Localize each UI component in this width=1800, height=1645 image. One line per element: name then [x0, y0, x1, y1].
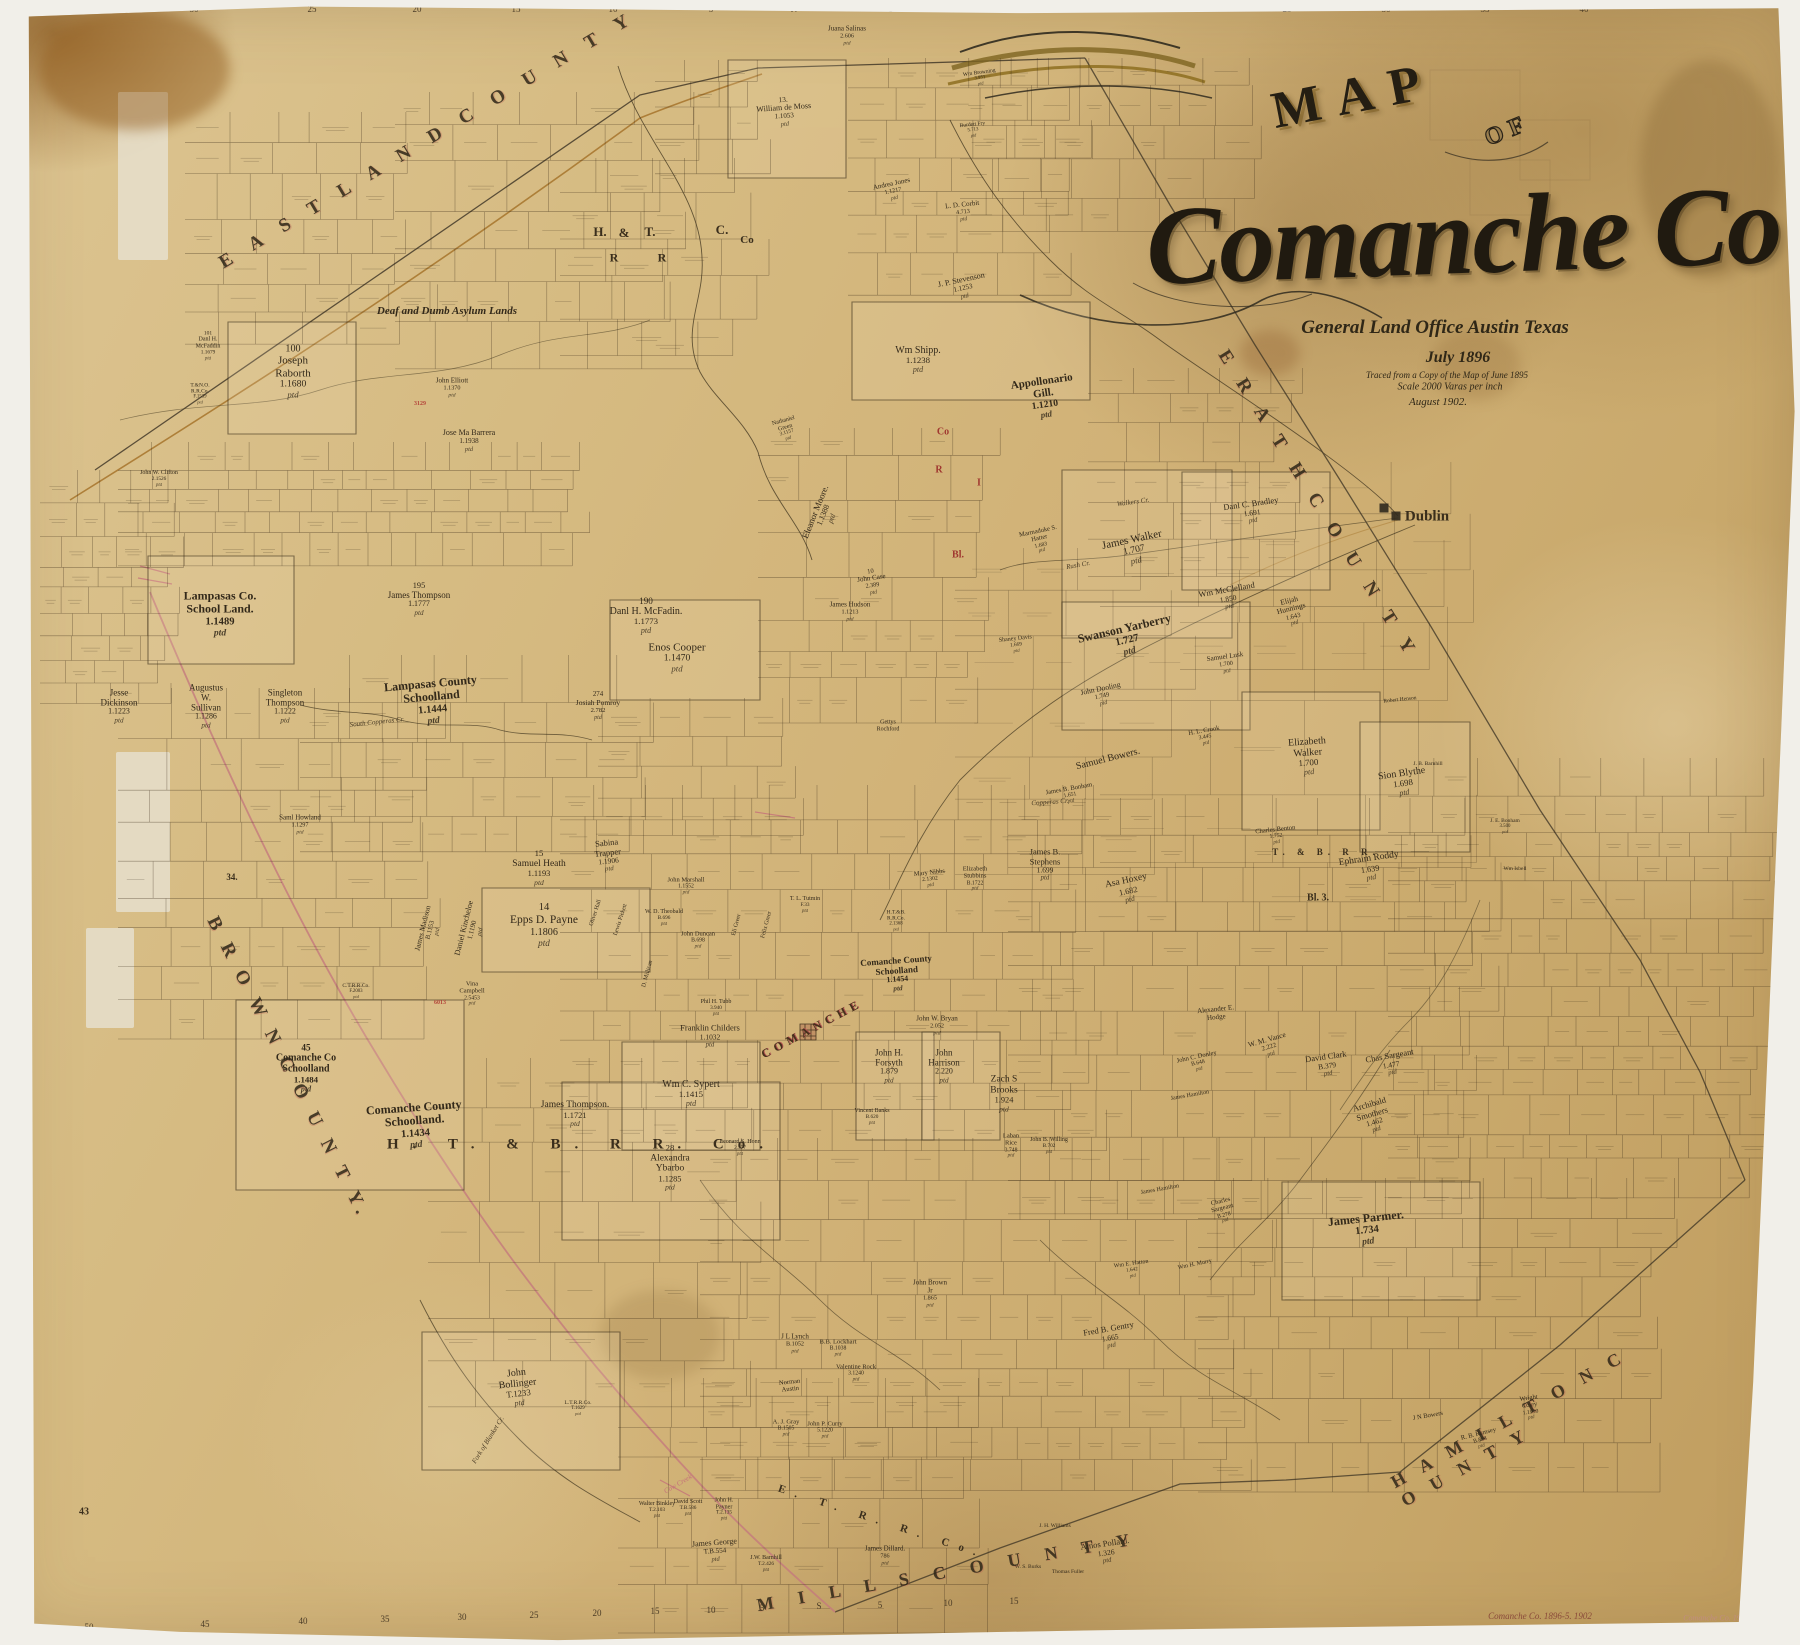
block-letter: R	[610, 251, 619, 266]
survey-label: Enos Cooper1.1470ptd	[648, 642, 705, 675]
survey-label: Lampasas Co.School Land.1.1489ptd	[184, 589, 257, 638]
ruler-mark-left: 10	[10, 695, 19, 705]
survey-label: James B.Stephens1.699ptd	[1030, 847, 1061, 882]
survey-label: JohnBollingerT.1233ptd	[497, 1366, 539, 1411]
archive-note: Comanche Co. 1902	[1683, 1614, 1749, 1623]
survey-label: T.&N.O.R.R.Co.F.1539ptd	[190, 383, 209, 406]
ruler-mark-bottom: 15	[1010, 1596, 1019, 1606]
survey-label: J L LynchB.1052ptd	[781, 1334, 809, 1355]
survey-label: David ScottT.B.586ptd	[674, 1499, 703, 1517]
subtitle-traced: Traced from a Copy of the Map of June 18…	[1366, 370, 1528, 380]
survey-label: 274Josiah Pomroy2.782ptd	[576, 691, 620, 721]
map-ink	[848, 58, 1091, 295]
ruler-mark-top: N	[791, 4, 798, 14]
block-letter: H.	[593, 224, 606, 240]
survey-label: John Marshall1.1552ptd	[667, 876, 704, 895]
survey-label: H.T.&B.R.R.Co.2.1368ptd	[887, 910, 906, 933]
ruler-mark-left: 35	[10, 195, 19, 205]
survey-label: Juana Salinas2.606ptd	[828, 26, 866, 47]
survey-label: 15Samuel Heath1.1193ptd	[512, 849, 566, 887]
block-letter: I	[977, 478, 981, 489]
survey-label: Wm Shipp.1.1238ptd	[895, 345, 941, 375]
survey-label: ElizabethWalker1.700ptd	[1288, 735, 1329, 779]
survey-label: Charles Benton1.752ptd	[1255, 824, 1297, 848]
survey-label: Phil H. Tubb3.940ptd	[701, 999, 732, 1017]
map-ink	[40, 470, 184, 704]
ruler-mark-top: 35	[1481, 4, 1490, 14]
survey-label: John H.PaynerT.2.135ptd	[715, 1498, 734, 1523]
survey-label: Deaf and Dumb Asylum Lands	[377, 305, 517, 317]
survey-label: ElizabethStubbinsB.1722ptd	[963, 866, 988, 893]
ruler-mark-left: 35	[10, 1595, 19, 1605]
survey-label: L.T.R.R.Co.T.1629ptd	[565, 1400, 592, 1417]
block-letter: Bl. 3.	[1307, 893, 1329, 904]
survey-label: 14Epps D. Payne1.1806ptd	[510, 902, 578, 948]
survey-label: NormanAustin	[779, 1378, 802, 1395]
ruler-mark-top: 30	[190, 4, 199, 14]
survey-label: JesseDickinson1.1223ptd	[101, 687, 138, 724]
ruler-mark-left: 20	[10, 495, 19, 505]
survey-label: John W. Bryan2.052ptd	[916, 1016, 957, 1037]
block-letter: R	[658, 251, 667, 266]
block-letter: &	[619, 225, 630, 241]
ruler-mark-top: 10	[986, 4, 995, 14]
ruler-mark-bottom: S	[816, 1601, 821, 1611]
survey-label: Comanche CountySchoolland1.1454ptd	[860, 953, 934, 995]
ruler-mark-bottom: 50	[85, 1622, 94, 1632]
ruler-mark-bottom: 30	[458, 1612, 467, 1622]
ruler-mark-left: 30	[10, 1495, 19, 1505]
ruler-mark-top: 15	[512, 4, 521, 14]
ruler-mark-top: 40	[1580, 4, 1589, 14]
ruler-mark-bottom: 20	[593, 1608, 602, 1618]
survey-label: John W. Clifton2.1526ptd	[140, 470, 178, 488]
map-ink	[118, 442, 590, 566]
survey-label: James Dillard.786ptd	[865, 1546, 905, 1567]
survey-label: John B. WillingB.702ptd	[1030, 1137, 1068, 1155]
title-county: Comanche Co	[1144, 161, 1783, 312]
survey-label: James GeorgeT.B.554ptd	[692, 1537, 739, 1564]
survey-label: John H.Forsyth1.879ptd	[875, 1047, 903, 1084]
survey-label: AppollonarioGill.1.1210ptd	[1010, 371, 1078, 425]
survey-label: VinaCampbell2.5453ptd	[459, 981, 484, 1008]
ruler-mark-left: 25	[10, 1395, 19, 1405]
ruler-mark-top: 20	[413, 4, 422, 14]
survey-label: J. E. Bonham3.500ptd	[1490, 818, 1520, 835]
survey-label: GettysRochford	[877, 719, 900, 732]
subtitle-scale: Scale 2000 Varas per inch	[1398, 382, 1503, 393]
survey-label: A. J. GrayB.1505ptd	[773, 1418, 800, 1437]
survey-label: Saml Howland1.1297ptd	[279, 815, 321, 836]
survey-label: SabinaTrapper1.1906ptd	[593, 837, 623, 875]
subtitle-office: General Land Office Austin Texas	[1301, 317, 1568, 339]
survey-label: J. H. Williams	[1039, 1523, 1070, 1529]
map-sheet: MAP OF Comanche Co General Land Office A…	[0, 0, 1800, 1645]
map-ink	[606, 717, 790, 820]
block-letter: 43	[79, 1507, 89, 1518]
survey-label: Wm Isbell	[1503, 866, 1526, 872]
archive-note: Comanche Co. 1896-5. 1902	[1488, 1611, 1592, 1621]
ruler-mark-top: 25	[308, 4, 317, 14]
survey-label: John P. Curry5.1220ptd	[807, 1420, 842, 1439]
map-ink	[118, 688, 445, 1039]
survey-label: John BrownJr1.865ptd	[913, 1280, 947, 1309]
town-label: Dublin	[1405, 509, 1449, 526]
ruler-mark-bottom: 45	[201, 1619, 210, 1629]
survey-label: C.T.R.R.Co.F.2003ptd	[342, 983, 369, 1000]
survey-label: Zach SBrooks1.924ptd	[990, 1074, 1017, 1113]
survey-label: Mary Nibbs2.1302ptd	[913, 868, 946, 891]
survey-label: AugustusW.Sullivan1.1286ptd	[189, 682, 223, 729]
subtitle-date: July 1896	[1426, 349, 1490, 367]
survey-label: John Elliott1.1370ptd	[436, 378, 468, 399]
ruler-mark-bottom: 10	[707, 1605, 716, 1615]
ruler-mark-top: 5	[889, 4, 894, 14]
survey-label: Wm C. Sypert1.1415ptd	[662, 1079, 720, 1109]
survey-label: B.B. LockhartB.1038ptd	[819, 1338, 856, 1357]
survey-label: Shaney Davis1.669ptd	[999, 634, 1034, 655]
survey-label: James Hudson1.1213ptd	[830, 602, 871, 623]
block-letter: Co	[937, 427, 949, 438]
map-ink	[858, 73, 1080, 277]
map-ink	[1380, 504, 1400, 520]
survey-label: Valentine Rock3.1240ptd	[836, 1363, 876, 1382]
ruler-mark-bottom: 5	[760, 1603, 765, 1613]
survey-label: 13.William de Moss1.1053ptd	[756, 94, 813, 130]
survey-label: J.W. BarnhillT.2.426ptd	[750, 1555, 782, 1573]
block-letter: 3129	[414, 401, 426, 407]
ruler-mark-left: 10	[10, 1095, 19, 1105]
ruler-mark-top: 30	[1382, 4, 1391, 14]
ruler-mark-left: 5	[10, 795, 15, 805]
survey-label: 100JosephRaborth1.1680ptd	[275, 344, 310, 401]
survey-label: 101Danl H.McFaddin1.1679ptd	[196, 331, 221, 362]
survey-label: JohnHarrison2.220ptd	[928, 1047, 960, 1084]
map-ink	[1008, 798, 1499, 1214]
survey-label: T. L. TutminF.33ptd	[790, 896, 820, 914]
survey-label: LabanRice3.748ptd	[1003, 1133, 1019, 1160]
survey-label: Vincent BanksB.620ptd	[854, 1108, 889, 1126]
survey-label: John DuncanB.698ptd	[681, 930, 715, 949]
subtitle-revised: August 1902.	[1409, 396, 1467, 408]
survey-label: W. D. TheobaldB.696ptd	[645, 909, 683, 927]
survey-label: L. D. Corbit4.713ptd	[945, 200, 981, 224]
ruler-mark-left: 15	[10, 1195, 19, 1205]
survey-label: Burdett Fry5.713ptd	[959, 120, 986, 139]
ruler-mark-bottom: 15	[651, 1606, 660, 1616]
map-screenshot: MAP OF Comanche Co General Land Office A…	[0, 0, 1800, 1645]
ruler-mark-left: W	[10, 900, 19, 910]
block-letter: Co	[740, 234, 753, 246]
ruler-mark-bottom: 40	[299, 1616, 308, 1626]
block-letter: T. & B. R R.	[1272, 847, 1380, 857]
ruler-mark-bottom: 5	[878, 1600, 883, 1610]
block-letter: R	[935, 465, 942, 476]
ruler-mark-top: 10	[609, 4, 618, 14]
map-ink	[573, 175, 719, 340]
block-letter: T.	[645, 224, 656, 240]
ruler-mark-top: 25	[1283, 4, 1292, 14]
survey-label: 190Danl H. McFadin.1.1773ptd	[610, 596, 683, 636]
survey-label: 195James Thompson1.1777ptd	[388, 581, 451, 617]
survey-label: James Thompson.1.1721ptd	[541, 1100, 609, 1128]
ruler-mark-left: 20	[10, 1295, 19, 1305]
survey-label: Jose Ma Barrera1.1938ptd	[443, 429, 495, 453]
ruler-mark-left: 5	[10, 995, 15, 1005]
survey-label: J. B. Barnhill	[1413, 761, 1442, 767]
ruler-mark-bottom: 10	[944, 1598, 953, 1608]
survey-label: 10John Case2.389ptd	[856, 566, 888, 598]
block-letter: Bl.	[952, 550, 964, 561]
ruler-mark-top: 15	[1085, 4, 1094, 14]
block-letter: 6013	[434, 1000, 446, 1006]
ruler-mark-left: 25	[10, 395, 19, 405]
ruler-mark-top: 20	[1184, 4, 1193, 14]
survey-label: Franklin Childers1.1032ptd	[680, 1023, 740, 1049]
ruler-mark-left: 40	[10, 95, 19, 105]
block-letter: C.	[716, 222, 729, 238]
block-letter: 34.	[226, 872, 237, 882]
survey-label: Thomas Fuller	[1052, 1569, 1084, 1575]
ruler-mark-left: 30	[10, 295, 19, 305]
block-letter: H. T. & B. R R. Co.	[387, 1137, 777, 1154]
ruler-mark-left: 15	[10, 595, 19, 605]
survey-label: SingletonThompson1.1222ptd	[266, 687, 305, 724]
map-ink	[125, 456, 570, 552]
ruler-mark-bottom: 25	[530, 1610, 539, 1620]
ruler-mark-top: 5	[709, 4, 714, 14]
survey-label: Walter BinkleyT.2.103ptd	[639, 1501, 675, 1519]
ruler-mark-bottom: 35	[381, 1614, 390, 1624]
